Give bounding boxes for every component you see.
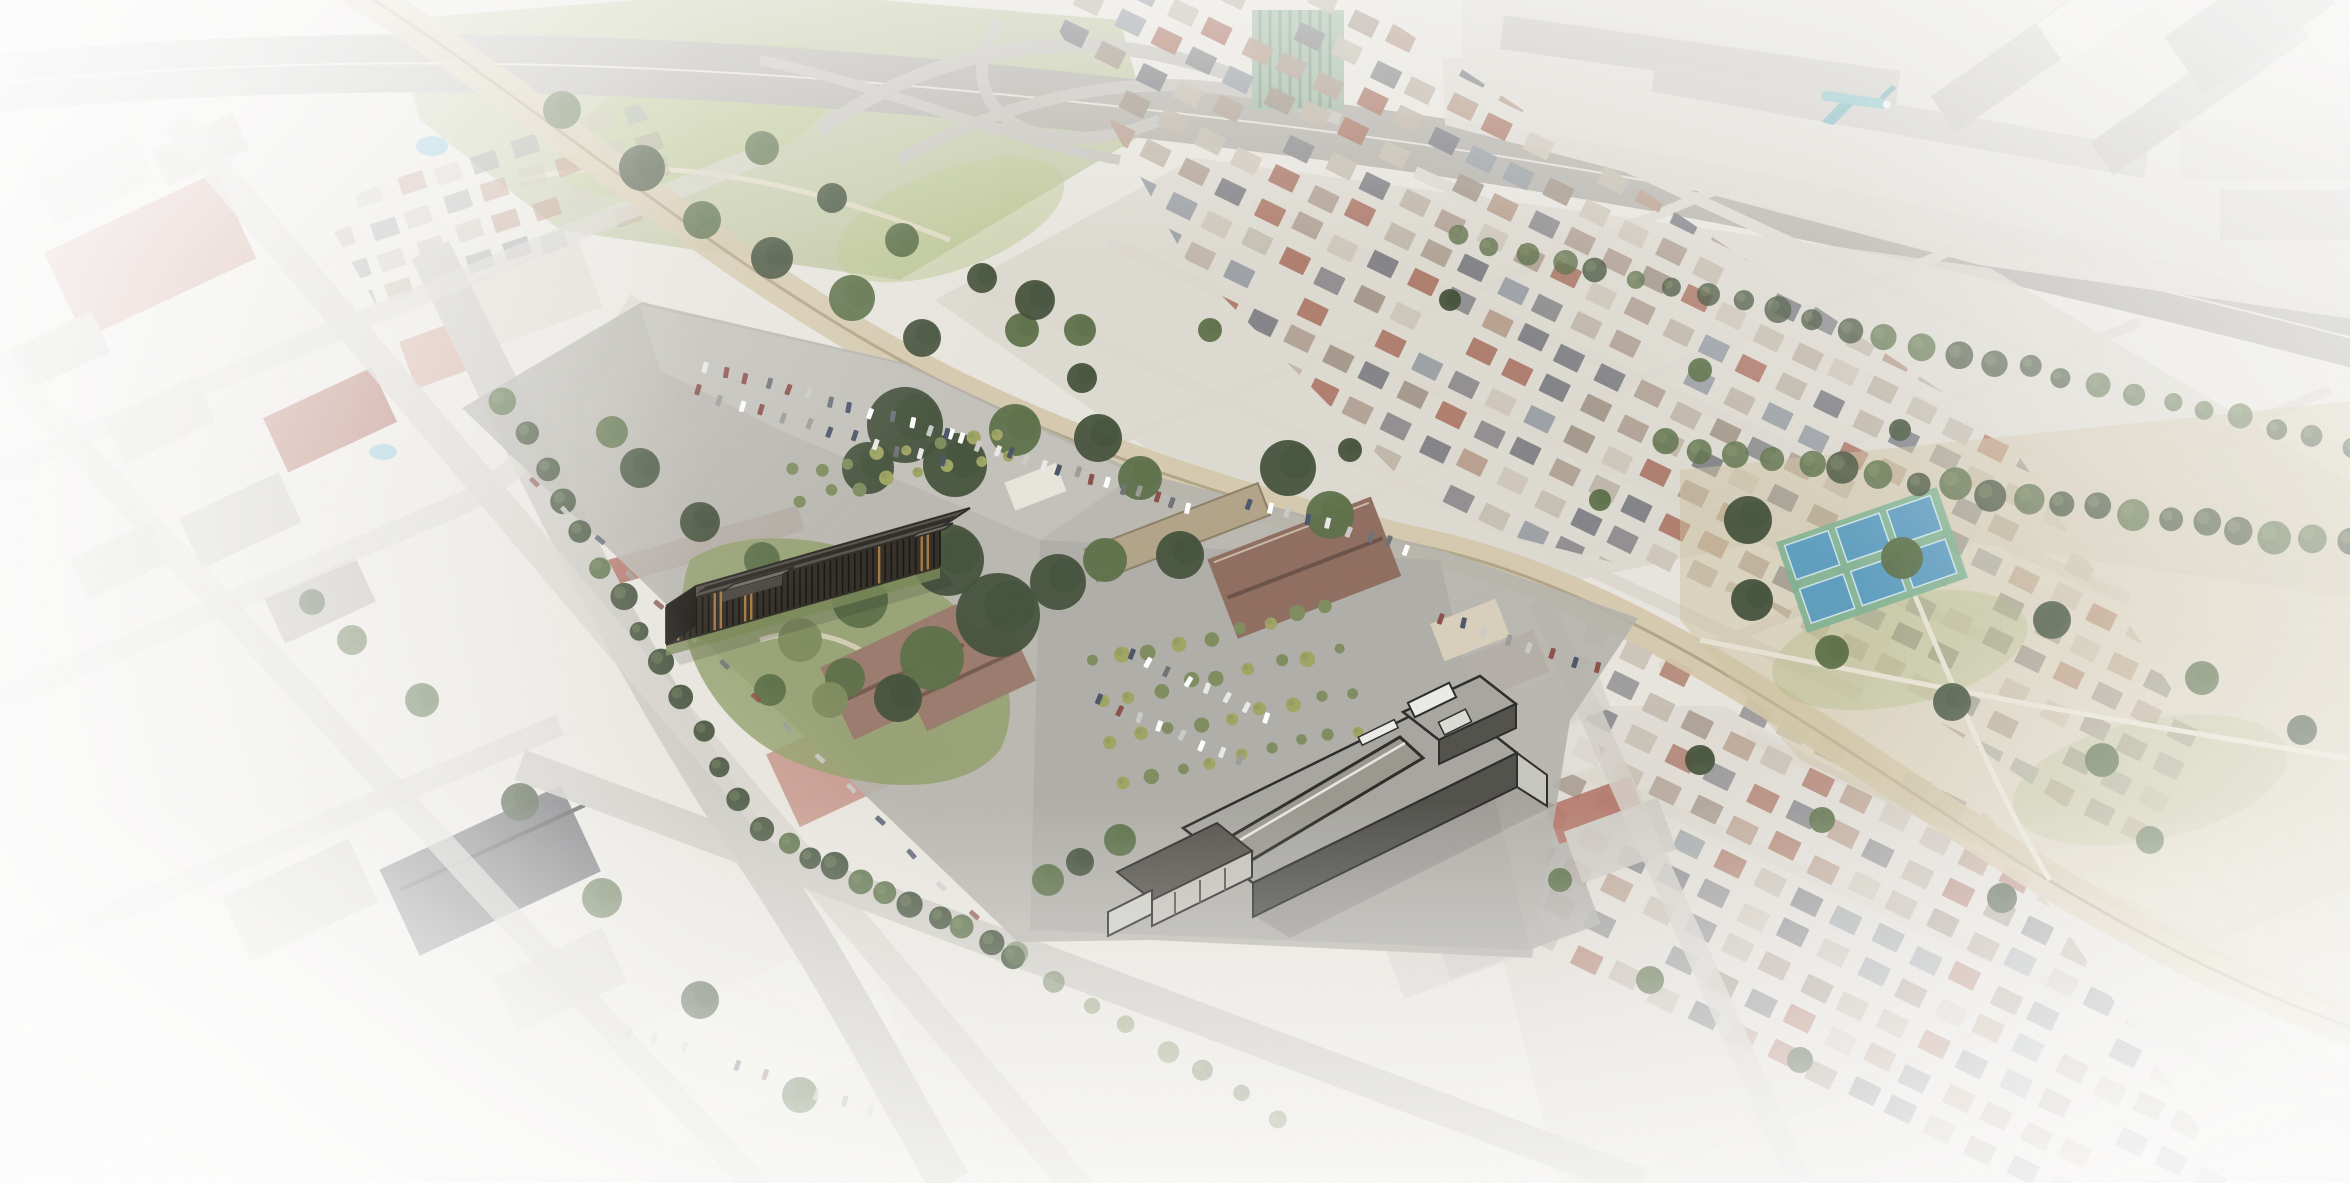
film-grain	[0, 0, 2350, 1183]
aerial-rendering	[0, 0, 2350, 1183]
aerial-scene	[0, 0, 2350, 1183]
